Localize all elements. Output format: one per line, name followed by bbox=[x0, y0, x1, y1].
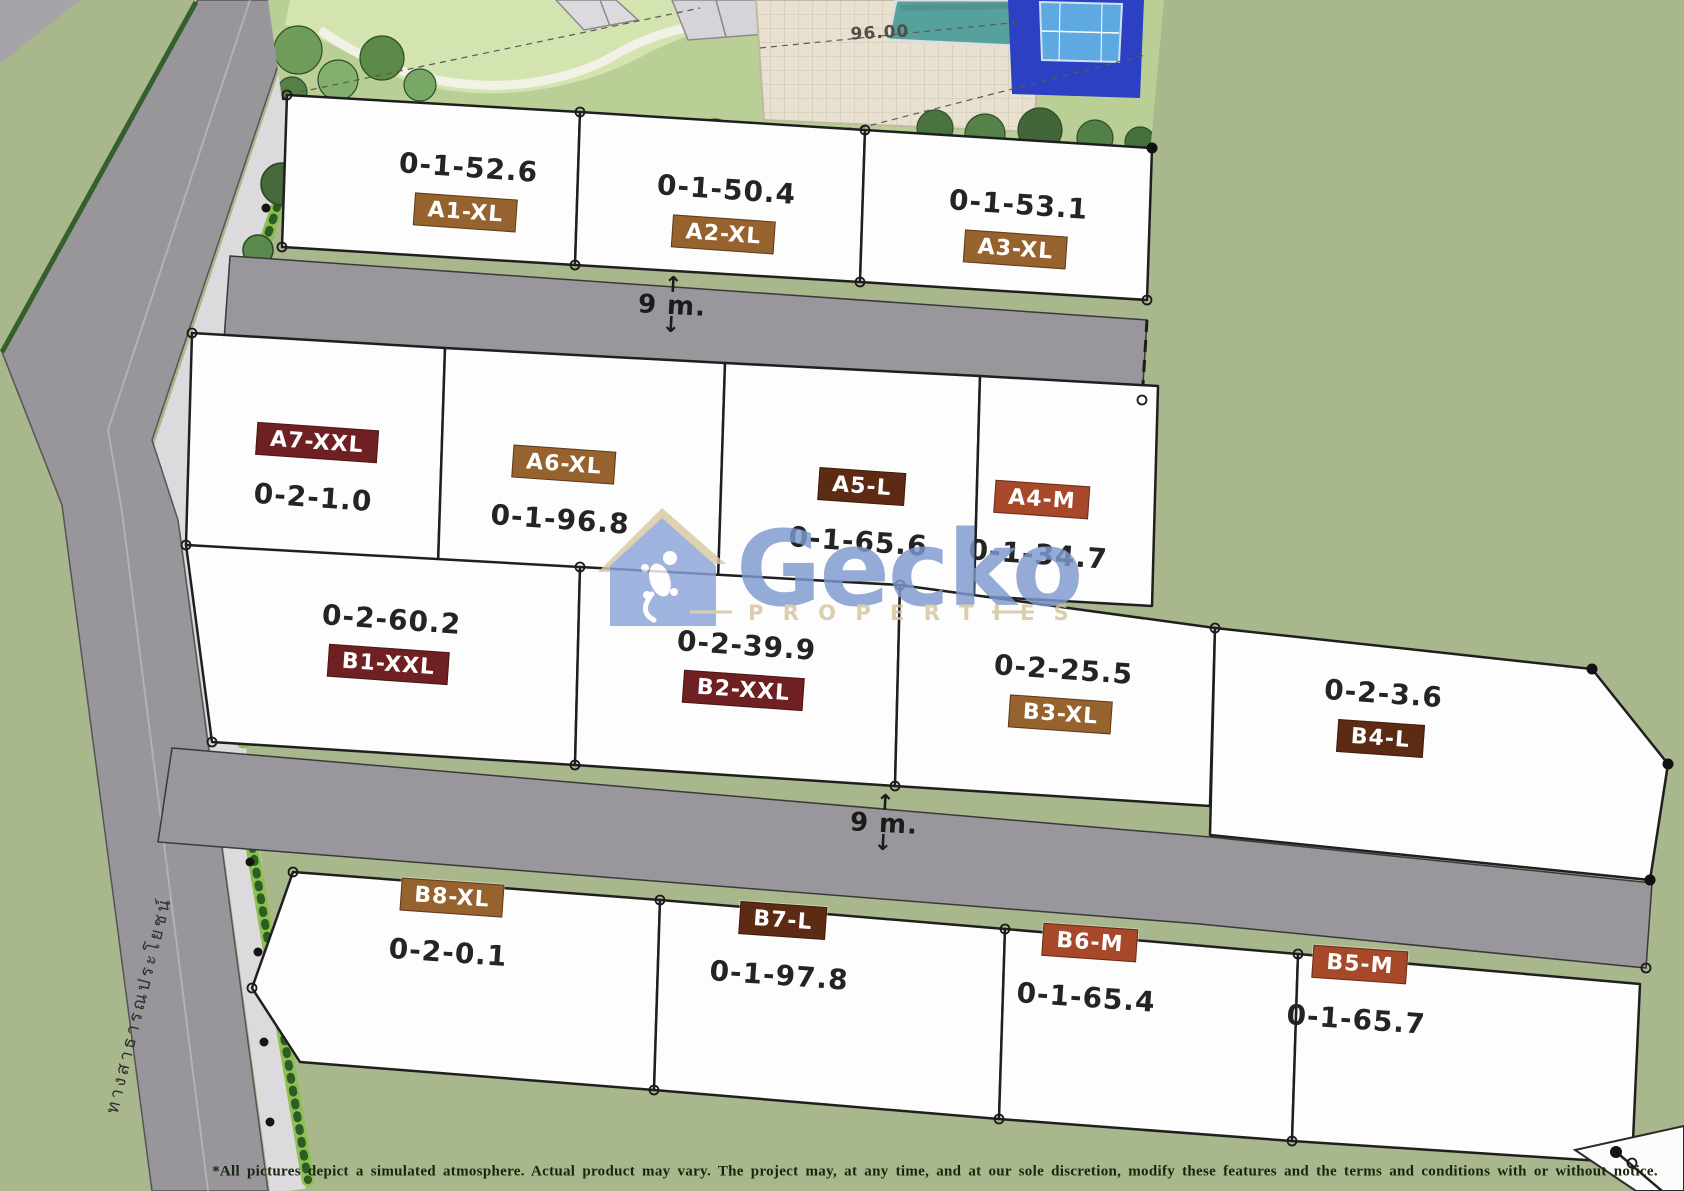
plot-label-a7: A7-XXL 0-2-1.0 bbox=[251, 422, 378, 518]
label-layer: 0-1-52.6 A1-XL 0-1-50.4 A2-XL 0-1-53.1 A… bbox=[0, 0, 1684, 1191]
plot-label-a4: A4-M 0-1-34.7 bbox=[967, 478, 1112, 576]
plot-area: 0-2-60.2 bbox=[321, 598, 462, 641]
plot-badge: A4-M bbox=[993, 480, 1090, 520]
plot-label-b8: B8-XL 0-2-0.1 bbox=[388, 877, 513, 973]
plot-badge: B8-XL bbox=[399, 878, 504, 918]
plot-badge: A3-XL bbox=[963, 229, 1069, 269]
side-road-name-label: ทางสาธารณประโยชน์ bbox=[97, 893, 179, 1116]
plot-area: 0-1-65.6 bbox=[787, 520, 928, 563]
road-a-width-dimension: ↑ 9 m. ↓ bbox=[637, 277, 708, 334]
plot-badge: B1-XXL bbox=[327, 644, 450, 685]
arrow-down-icon: ↓ bbox=[661, 318, 680, 333]
arrow-down-icon: ↓ bbox=[873, 836, 892, 851]
plot-area: 0-2-1.0 bbox=[253, 477, 374, 518]
site-plan: 0-1-52.6 A1-XL 0-1-50.4 A2-XL 0-1-53.1 A… bbox=[0, 0, 1684, 1191]
plot-area: 0-1-50.4 bbox=[656, 168, 797, 211]
plot-label-b1: 0-2-60.2 B1-XXL bbox=[318, 598, 462, 686]
plot-label-a1: 0-1-52.6 A1-XL bbox=[395, 146, 539, 234]
plot-area: 0-1-53.1 bbox=[948, 183, 1089, 226]
plot-area: 0-2-0.1 bbox=[388, 932, 509, 973]
plot-label-b4: 0-2-3.6 B4-L bbox=[1320, 673, 1444, 759]
plot-badge: A2-XL bbox=[671, 214, 777, 254]
plot-area: 0-1-96.8 bbox=[489, 498, 630, 541]
plot-area: 0-2-25.5 bbox=[993, 648, 1134, 691]
road-b-width-dimension: ↑ 9 m. ↓ bbox=[849, 795, 920, 852]
plot-area: 0-1-52.6 bbox=[398, 146, 539, 189]
plot-badge: A7-XXL bbox=[255, 422, 379, 463]
plot-area: 0-1-97.8 bbox=[708, 954, 849, 997]
plot-label-b2: 0-2-39.9 B2-XXL bbox=[673, 624, 817, 712]
pool-elevation-label: 96.00 bbox=[850, 21, 910, 44]
plot-label-a2: 0-1-50.4 A2-XL bbox=[653, 168, 797, 256]
plot-badge: B4-L bbox=[1336, 719, 1425, 758]
plot-badge: B5-M bbox=[1311, 945, 1408, 985]
plot-label-b3: 0-2-25.5 B3-XL bbox=[990, 648, 1134, 736]
plot-badge: B2-XXL bbox=[682, 670, 805, 711]
plot-badge: B6-M bbox=[1041, 923, 1138, 963]
plot-label-a6: A6-XL 0-1-96.8 bbox=[489, 443, 634, 541]
disclaimer-text: *All pictures depict a simulated atmosph… bbox=[212, 1164, 1658, 1181]
plot-badge: A6-XL bbox=[511, 444, 617, 484]
plot-label-b7: B7-L 0-1-97.8 bbox=[708, 899, 853, 997]
plot-area: 0-1-65.7 bbox=[1285, 998, 1426, 1041]
plot-badge: A5-L bbox=[817, 467, 907, 506]
plot-area: 0-2-39.9 bbox=[676, 624, 817, 667]
plot-label-a3: 0-1-53.1 A3-XL bbox=[945, 183, 1089, 271]
plot-badge: B3-XL bbox=[1008, 694, 1113, 734]
plot-label-a5: A5-L 0-1-65.6 bbox=[787, 465, 932, 563]
plot-label-b6: B6-M 0-1-65.4 bbox=[1015, 921, 1160, 1019]
plot-area: 0-1-65.4 bbox=[1015, 976, 1156, 1019]
plot-label-b5: B5-M 0-1-65.7 bbox=[1285, 943, 1430, 1041]
plot-area: 0-1-34.7 bbox=[967, 533, 1108, 576]
plot-badge: B7-L bbox=[738, 901, 827, 940]
plot-area: 0-2-3.6 bbox=[1323, 673, 1444, 714]
plot-badge: A1-XL bbox=[413, 192, 519, 232]
